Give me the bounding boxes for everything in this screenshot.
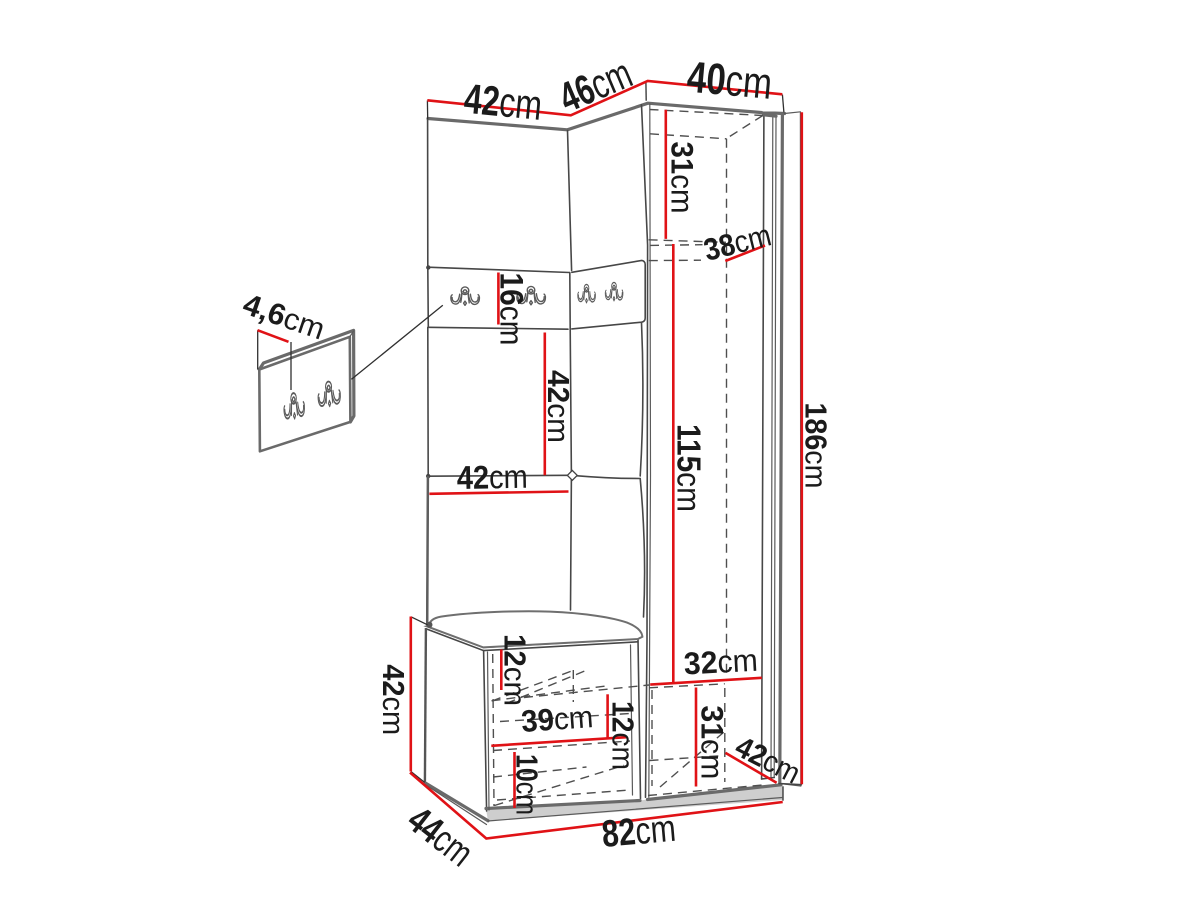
svg-text:31cm: 31cm: [695, 705, 731, 779]
svg-text:115cm: 115cm: [671, 424, 708, 512]
svg-text:40cm: 40cm: [685, 53, 774, 109]
svg-text:32cm: 32cm: [683, 642, 759, 682]
svg-text:82cm: 82cm: [600, 808, 677, 856]
svg-text:186cm: 186cm: [799, 403, 834, 489]
svg-text:42cm: 42cm: [541, 370, 576, 443]
svg-text:31cm: 31cm: [665, 142, 701, 214]
svg-text:12cm: 12cm: [498, 634, 533, 706]
svg-text:39cm: 39cm: [520, 699, 594, 739]
svg-text:42cm: 42cm: [462, 75, 544, 129]
svg-text:10cm: 10cm: [510, 754, 545, 815]
svg-text:42cm: 42cm: [376, 664, 411, 735]
svg-text:42cm: 42cm: [456, 458, 528, 496]
svg-text:16cm: 16cm: [494, 273, 530, 346]
svg-text:12cm: 12cm: [606, 701, 641, 770]
